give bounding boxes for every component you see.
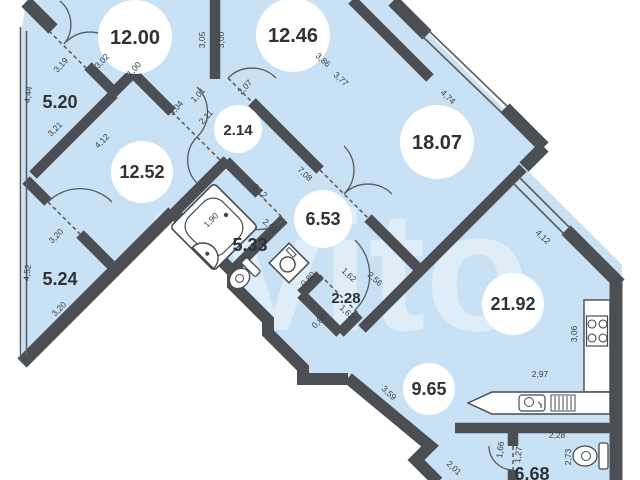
dim-label: 3,05 — [197, 31, 207, 48]
room-area-label: 2.14 — [223, 122, 253, 139]
dim-label: 3,06 — [569, 325, 579, 342]
room-area-label: 12.52 — [119, 162, 164, 182]
room-area-label: 5.24 — [42, 269, 77, 289]
room-area-label: 18.07 — [412, 132, 462, 154]
dim-label: 4,52 — [21, 264, 33, 282]
room-area-label: 5.20 — [42, 92, 77, 112]
dim-label: 1,66 — [494, 441, 506, 459]
dim-label: 2,28 — [549, 430, 566, 440]
dim-label: 4,44 — [22, 86, 34, 104]
dim-label: 2,97 — [532, 369, 549, 379]
toilet-bowl — [573, 446, 597, 466]
room-area-label: 5.33 — [232, 235, 267, 255]
room-area-label: 21.92 — [490, 294, 535, 314]
toilet-tank — [599, 443, 608, 469]
dim-label: 2,73 — [563, 448, 573, 465]
dish-rack — [551, 395, 575, 411]
dim-label: 3,00 — [216, 31, 226, 48]
kitchen-sink — [519, 395, 545, 411]
room-area-label: 12.46 — [268, 25, 318, 47]
floor-plan: Avito — [0, 0, 640, 480]
floor-plan-canvas: Avito — [0, 0, 640, 480]
room-area-label: 6.53 — [305, 209, 340, 229]
room-area-label: 6.68 — [514, 464, 549, 480]
dim-label: 1,27 — [512, 446, 524, 464]
room-area-label: 12.00 — [110, 27, 160, 49]
room-area-label: 9.65 — [411, 379, 446, 399]
